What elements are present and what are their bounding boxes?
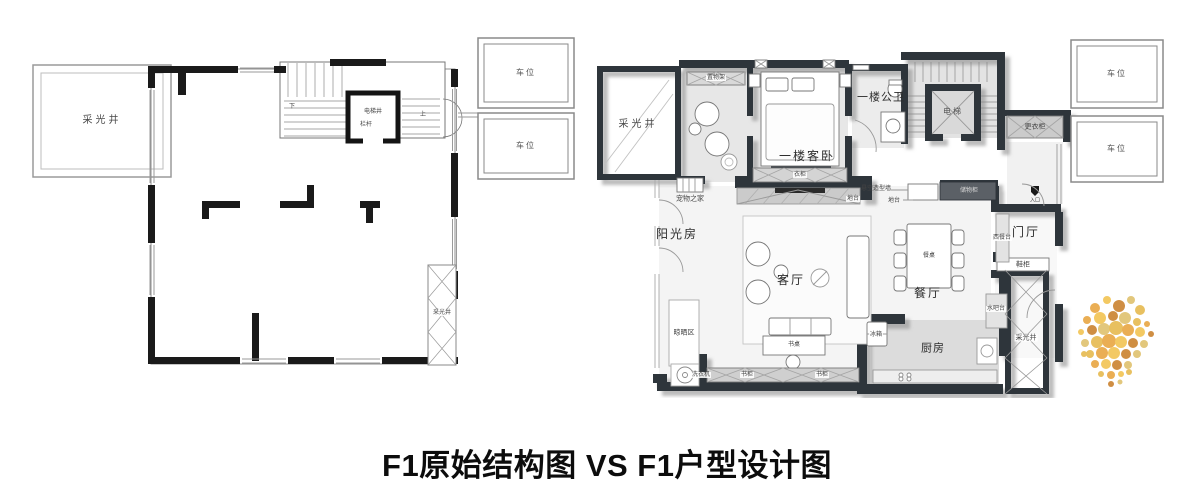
label-parking-top: 车位 (1107, 70, 1127, 78)
label-dining-room: 餐厅 (914, 287, 942, 299)
label-railing: 栏杆 (360, 122, 372, 128)
label-desk: 书桌 (787, 342, 801, 348)
label-elevator-shaft: 电梯井 (364, 109, 382, 115)
label-storage-cabinet: 储物柜 (960, 188, 978, 194)
label-dining-table: 餐桌 (923, 253, 935, 259)
left-plan-original-structure: 采光井 电梯井 栏杆 下 上 车位 车位 采光井 (30, 35, 580, 380)
label-guest-bedroom: 一楼客卧 (779, 150, 835, 162)
label-stair-up: 上 (420, 112, 426, 118)
label-sunroom: 阳光房 (656, 228, 698, 240)
label-washing-machine: 洗衣机 (691, 372, 711, 378)
label-floating-wall: 悬空造型墙 (861, 186, 891, 192)
label-light-well: 采光井 (83, 116, 122, 126)
label-light-well-side: 采光井 (432, 310, 452, 316)
label-drying-area: 晾晒区 (674, 330, 695, 337)
right-plan-design-layout: 采光井 置物架 一楼客卧 衣柜 一楼公卫 电梯 更衣柜 车位 车位 宠物之家 阳… (595, 38, 1170, 398)
label-platform-right: 地台 (888, 198, 900, 204)
label-living-room: 客厅 (777, 274, 805, 286)
label-fridge: 冰箱 (869, 332, 883, 338)
label-pet-home: 宠物之家 (676, 196, 704, 203)
page-title: F1原始结构图 VS F1户型设计图 (382, 440, 832, 485)
label-stair-down: 下 (289, 104, 295, 110)
label-elevator: 电梯 (943, 108, 963, 116)
label-parking-top: 车位 (516, 69, 536, 77)
label-bookcase-left: 书柜 (740, 372, 754, 378)
label-shoe-cabinet: 鞋柜 (1016, 262, 1030, 269)
plant-graphic (1078, 296, 1154, 387)
label-bathroom: 一楼公卫 (857, 93, 905, 104)
label-kitchen: 厨房 (921, 344, 945, 355)
label-western-counter: 西餐台 (992, 235, 1012, 241)
label-entry-hall: 门厅 (1012, 226, 1040, 238)
label-parking-bottom: 车位 (1107, 145, 1127, 153)
label-water-bar: 水吧台 (986, 306, 1006, 312)
label-changing-closet: 更衣柜 (1025, 124, 1046, 131)
label-bookcase-right: 书柜 (815, 372, 829, 378)
label-parking-bottom: 车位 (516, 142, 536, 150)
label-wardrobe: 衣柜 (793, 172, 807, 178)
label-light-well-side: 采光井 (1015, 335, 1038, 342)
label-entry: 入口 (1030, 199, 1040, 204)
left-plan-drawing (30, 35, 580, 380)
label-light-well: 采光井 (619, 120, 658, 130)
label-shelf: 置物架 (706, 75, 726, 81)
left-plan-parking (478, 38, 574, 179)
label-platform-left: 地台 (846, 196, 860, 202)
